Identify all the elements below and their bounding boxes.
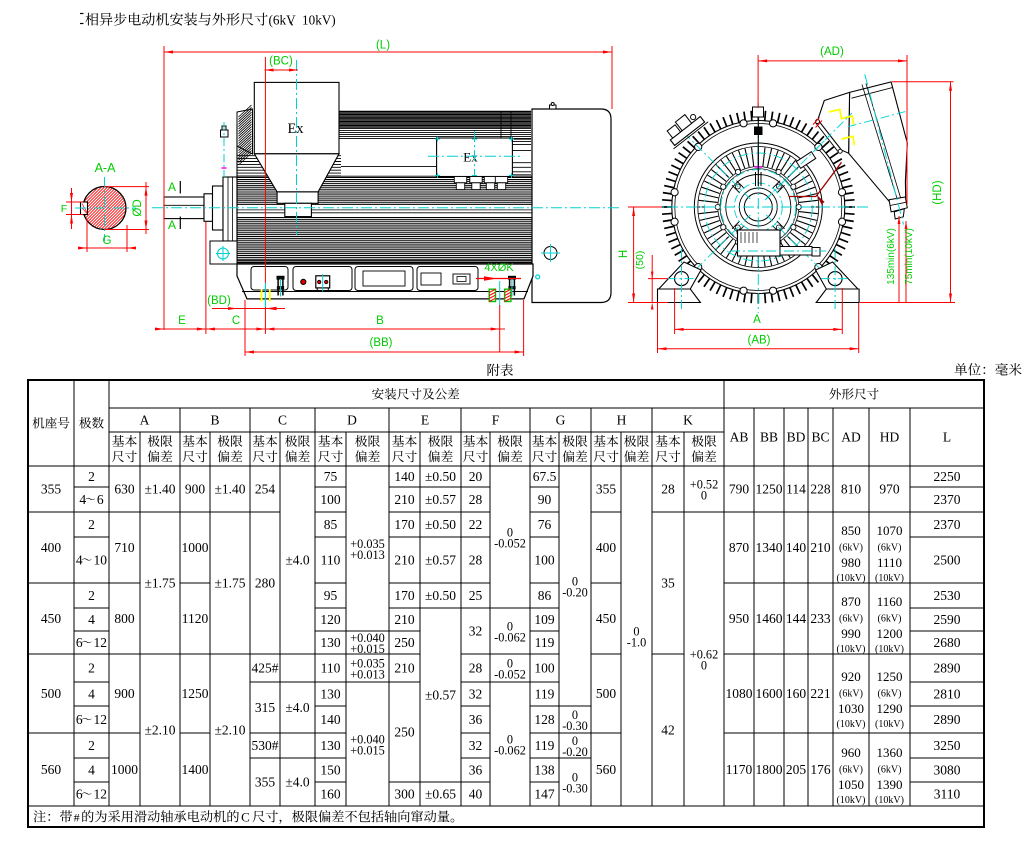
svg-text:1080: 1080 <box>726 686 753 701</box>
svg-text:28: 28 <box>469 492 483 507</box>
svg-text:4: 4 <box>88 763 95 778</box>
svg-text:1000: 1000 <box>182 540 209 555</box>
svg-text:870: 870 <box>841 594 861 609</box>
svg-text:1120: 1120 <box>182 611 209 626</box>
svg-text:C: C <box>278 413 287 428</box>
svg-text:(HD): (HD) <box>932 180 944 204</box>
svg-text:25: 25 <box>469 588 483 603</box>
svg-text:(6kV): (6kV) <box>839 543 863 554</box>
svg-text:-0.052: -0.052 <box>494 537 526 551</box>
svg-text:95: 95 <box>324 588 338 603</box>
svg-text:120: 120 <box>320 612 341 627</box>
svg-text:(10kV): (10kV) <box>875 719 904 730</box>
svg-text:±2.10: ±2.10 <box>144 723 175 738</box>
svg-text:500: 500 <box>596 686 617 701</box>
svg-text:140: 140 <box>786 540 807 555</box>
svg-text:3250: 3250 <box>934 738 961 753</box>
svg-text:450: 450 <box>596 611 617 626</box>
svg-text:530#: 530# <box>252 738 279 753</box>
svg-text:±2.10: ±2.10 <box>214 723 245 738</box>
svg-text:(10kV): (10kV) <box>875 644 904 655</box>
svg-text:355: 355 <box>255 775 276 790</box>
svg-text:±0.57: ±0.57 <box>425 492 456 507</box>
svg-text:1250: 1250 <box>182 686 209 701</box>
svg-text:±1.75: ±1.75 <box>214 576 245 591</box>
svg-text:128: 128 <box>534 712 555 727</box>
svg-text:(AD): (AD) <box>820 46 844 58</box>
svg-text:AB: AB <box>730 430 749 445</box>
svg-text:B: B <box>210 413 219 428</box>
svg-text:2530: 2530 <box>934 588 961 603</box>
svg-text:-0.062: -0.062 <box>494 744 526 758</box>
svg-text:210: 210 <box>394 612 415 627</box>
svg-text:(6kV): (6kV) <box>839 765 863 776</box>
svg-text:+0.013: +0.013 <box>350 548 385 562</box>
svg-text:2500: 2500 <box>934 553 961 568</box>
svg-text:150: 150 <box>320 763 341 778</box>
svg-text:(10kV): (10kV) <box>875 573 904 584</box>
svg-text:920: 920 <box>841 669 861 684</box>
svg-text:BC: BC <box>811 430 829 445</box>
svg-text:710: 710 <box>114 540 135 555</box>
svg-text:1050: 1050 <box>838 777 864 792</box>
svg-text:12: 12 <box>94 787 108 802</box>
svg-text:A: A <box>168 218 176 232</box>
svg-text:(6kV): (6kV) <box>839 614 863 625</box>
svg-text:1290: 1290 <box>877 701 903 716</box>
svg-text:2590: 2590 <box>934 612 961 627</box>
svg-text:36: 36 <box>469 712 483 727</box>
svg-text:(10kV): (10kV) <box>875 795 904 806</box>
svg-text:960: 960 <box>841 745 861 760</box>
svg-text:250: 250 <box>394 635 415 650</box>
svg-text:800: 800 <box>114 611 135 626</box>
svg-text:6: 6 <box>76 635 83 650</box>
svg-text:1360: 1360 <box>877 745 903 760</box>
svg-text:210: 210 <box>394 492 415 507</box>
svg-text:F: F <box>61 203 67 215</box>
svg-text:(6kV): (6kV) <box>839 689 863 700</box>
svg-text:2680: 2680 <box>934 635 961 650</box>
svg-text:#: # <box>74 810 80 824</box>
svg-text:+0.015: +0.015 <box>350 744 385 758</box>
svg-text:1340: 1340 <box>756 540 783 555</box>
svg-text:119: 119 <box>535 635 555 650</box>
svg-text:400: 400 <box>41 540 62 555</box>
svg-text:85: 85 <box>324 517 338 532</box>
svg-text:109: 109 <box>534 612 555 627</box>
svg-text:110: 110 <box>321 661 341 676</box>
svg-text:630: 630 <box>114 482 135 497</box>
svg-text:2370: 2370 <box>934 517 961 532</box>
svg-text:35: 35 <box>661 576 675 591</box>
svg-text:130: 130 <box>320 635 341 650</box>
svg-text:-1.0: -1.0 <box>627 636 646 650</box>
svg-text:2: 2 <box>88 661 95 676</box>
svg-text:560: 560 <box>596 762 617 777</box>
svg-text:160: 160 <box>320 787 341 802</box>
svg-text:(6kV): (6kV) <box>878 543 902 554</box>
svg-text:900: 900 <box>114 686 135 701</box>
svg-text:(10kV): (10kV) <box>837 644 866 655</box>
svg-text:Ex: Ex <box>463 150 478 165</box>
svg-text:2: 2 <box>88 588 95 603</box>
svg-text:E: E <box>421 413 429 428</box>
svg-text:32: 32 <box>469 624 483 639</box>
svg-text:1200: 1200 <box>877 626 903 641</box>
svg-text:28: 28 <box>469 553 483 568</box>
svg-text:110: 110 <box>321 553 341 568</box>
svg-text:2370: 2370 <box>934 492 961 507</box>
svg-text:355: 355 <box>41 482 62 497</box>
svg-text:4: 4 <box>79 492 86 507</box>
svg-text:6: 6 <box>76 712 83 727</box>
svg-text:12: 12 <box>94 635 108 650</box>
svg-text:(BB): (BB) <box>370 337 393 349</box>
svg-text:170: 170 <box>394 517 415 532</box>
svg-text:±4.0: ±4.0 <box>285 553 310 568</box>
svg-text:130: 130 <box>320 738 341 753</box>
svg-text:2810: 2810 <box>934 687 961 702</box>
svg-text:1390: 1390 <box>877 777 903 792</box>
svg-text:114: 114 <box>786 482 806 497</box>
svg-text:±0.57: ±0.57 <box>425 553 456 568</box>
svg-text:450: 450 <box>41 611 62 626</box>
svg-text:B: B <box>376 315 384 327</box>
svg-text:980: 980 <box>841 555 861 570</box>
svg-text:A: A <box>753 314 761 326</box>
svg-text:-0.30: -0.30 <box>562 719 588 733</box>
svg-text:300: 300 <box>394 787 415 802</box>
svg-text:-0.20: -0.20 <box>562 745 588 759</box>
svg-text:254: 254 <box>255 482 276 497</box>
svg-text:1000: 1000 <box>111 762 138 777</box>
svg-text:1250: 1250 <box>756 482 783 497</box>
svg-text:144: 144 <box>786 611 807 626</box>
svg-text:±0.50: ±0.50 <box>425 469 456 484</box>
svg-text:86: 86 <box>538 588 552 603</box>
svg-text:500: 500 <box>41 686 62 701</box>
svg-text:+0.015: +0.015 <box>350 642 385 656</box>
svg-text:(6kV): (6kV) <box>878 689 902 700</box>
svg-text:20: 20 <box>469 469 483 484</box>
svg-text:400: 400 <box>596 540 617 555</box>
svg-text:75min(10kV): 75min(10kV) <box>904 228 915 285</box>
svg-text:176: 176 <box>810 762 831 777</box>
svg-text:28: 28 <box>661 482 675 497</box>
svg-text:205: 205 <box>786 762 807 777</box>
svg-text:(50): (50) <box>634 251 646 270</box>
svg-text:90: 90 <box>538 492 552 507</box>
svg-text:32: 32 <box>469 738 483 753</box>
svg-text:G: G <box>103 235 112 247</box>
svg-text:(AB): (AB) <box>748 335 771 347</box>
svg-text:100: 100 <box>320 492 341 507</box>
svg-text:970: 970 <box>879 482 900 497</box>
svg-text:6: 6 <box>76 787 83 802</box>
svg-text:-0.052: -0.052 <box>494 668 526 682</box>
svg-text:119: 119 <box>535 687 555 702</box>
svg-text:135min(6kV): 135min(6kV) <box>886 228 897 285</box>
svg-text:AD: AD <box>841 430 861 445</box>
svg-text:BB: BB <box>760 430 778 445</box>
svg-text:HD: HD <box>880 430 900 445</box>
svg-text:A-A: A-A <box>95 161 117 175</box>
svg-text:1030: 1030 <box>838 701 864 716</box>
svg-text:0: 0 <box>701 659 707 673</box>
svg-text:(6kV): (6kV) <box>878 614 902 625</box>
svg-text:170: 170 <box>394 588 415 603</box>
svg-text:±4.0: ±4.0 <box>285 700 310 715</box>
svg-text:67.5: 67.5 <box>533 469 557 484</box>
svg-text:±1.75: ±1.75 <box>144 576 175 591</box>
svg-text:280: 280 <box>255 576 276 591</box>
svg-text:±4.0: ±4.0 <box>285 775 310 790</box>
svg-text:ØD: ØD <box>132 199 144 216</box>
svg-text:900: 900 <box>185 482 206 497</box>
svg-text:2890: 2890 <box>934 661 961 676</box>
svg-text:12: 12 <box>94 712 108 727</box>
svg-text:±1.40: ±1.40 <box>214 482 245 497</box>
svg-text:G: G <box>556 413 566 428</box>
svg-text:560: 560 <box>41 762 62 777</box>
svg-text:4: 4 <box>88 612 95 627</box>
svg-text:1400: 1400 <box>182 762 209 777</box>
svg-text:850: 850 <box>841 523 861 538</box>
svg-text:A: A <box>140 413 150 428</box>
svg-text:790: 790 <box>729 482 750 497</box>
svg-text:-0.30: -0.30 <box>562 782 588 796</box>
svg-text:4: 4 <box>76 553 83 568</box>
svg-text:950: 950 <box>729 611 750 626</box>
svg-text:2: 2 <box>88 738 95 753</box>
svg-text:100: 100 <box>534 553 555 568</box>
svg-text:355: 355 <box>596 482 617 497</box>
svg-text:228: 228 <box>810 482 831 497</box>
svg-text:+0.013: +0.013 <box>350 668 385 682</box>
svg-text:1160: 1160 <box>877 594 903 609</box>
svg-text:-0.20: -0.20 <box>562 586 588 600</box>
svg-text:1070: 1070 <box>877 523 903 538</box>
svg-text:1110: 1110 <box>877 555 902 570</box>
svg-text:160: 160 <box>786 686 807 701</box>
svg-text:130: 130 <box>320 687 341 702</box>
svg-text:210: 210 <box>394 661 415 676</box>
svg-text:(BC): (BC) <box>269 56 293 68</box>
svg-text:221: 221 <box>810 686 830 701</box>
svg-text:±1.40: ±1.40 <box>144 482 175 497</box>
svg-text:2: 2 <box>88 469 95 484</box>
svg-text:75: 75 <box>324 469 338 484</box>
svg-text:210: 210 <box>394 553 415 568</box>
svg-text:(10kV): (10kV) <box>837 573 866 584</box>
svg-text:E: E <box>178 315 186 327</box>
svg-text:±0.50: ±0.50 <box>425 517 456 532</box>
svg-text:A: A <box>168 180 176 194</box>
svg-text:32: 32 <box>469 687 483 702</box>
svg-text:40: 40 <box>469 787 483 802</box>
svg-text:140: 140 <box>394 469 415 484</box>
svg-text:(10kV): (10kV) <box>837 719 866 730</box>
svg-text:233: 233 <box>810 611 831 626</box>
svg-text:L: L <box>943 430 951 445</box>
svg-text:F: F <box>492 413 500 428</box>
svg-text:6: 6 <box>97 492 104 507</box>
svg-text:119: 119 <box>535 738 555 753</box>
svg-text:147: 147 <box>534 787 555 802</box>
svg-text:3080: 3080 <box>934 763 961 778</box>
svg-text:1460: 1460 <box>756 611 783 626</box>
svg-text:4XØK: 4XØK <box>484 262 514 274</box>
svg-text:H: H <box>617 413 627 428</box>
svg-text:315: 315 <box>255 700 276 715</box>
svg-text:0: 0 <box>701 489 707 503</box>
svg-text:250: 250 <box>394 725 415 740</box>
svg-text:28: 28 <box>469 661 483 676</box>
svg-text:76: 76 <box>538 517 552 532</box>
svg-text:22: 22 <box>469 517 483 532</box>
svg-text:210: 210 <box>810 540 831 555</box>
svg-text:D: D <box>347 413 357 428</box>
svg-text:C: C <box>232 315 240 327</box>
svg-text:(L): (L) <box>376 40 390 52</box>
svg-text:1170: 1170 <box>726 762 753 777</box>
svg-text:42: 42 <box>661 723 675 738</box>
svg-text:990: 990 <box>841 626 861 641</box>
svg-text:H: H <box>618 250 630 258</box>
svg-text:K: K <box>683 413 693 428</box>
svg-text:140: 140 <box>320 712 341 727</box>
svg-text:36: 36 <box>469 763 483 778</box>
svg-text:10kV): 10kV) <box>302 13 336 28</box>
svg-text:-0.062: -0.062 <box>494 631 526 645</box>
svg-text:±0.57: ±0.57 <box>425 688 456 703</box>
svg-text:±0.50: ±0.50 <box>425 588 456 603</box>
svg-text:138: 138 <box>534 763 555 778</box>
svg-text:4: 4 <box>88 687 95 702</box>
svg-text:2890: 2890 <box>934 712 961 727</box>
svg-text:2250: 2250 <box>934 469 961 484</box>
svg-text:100: 100 <box>534 661 555 676</box>
svg-text:(BD): (BD) <box>207 295 231 307</box>
svg-text:810: 810 <box>841 482 862 497</box>
svg-text:10: 10 <box>94 553 108 568</box>
svg-text:Ex: Ex <box>287 121 304 137</box>
svg-text:3110: 3110 <box>934 787 961 802</box>
svg-text:1250: 1250 <box>877 669 903 684</box>
svg-text:±0.65: ±0.65 <box>425 787 456 802</box>
svg-text:425#: 425# <box>252 661 279 676</box>
svg-text:BD: BD <box>787 430 806 445</box>
svg-text:(10kV): (10kV) <box>837 795 866 806</box>
svg-text:1600: 1600 <box>756 686 783 701</box>
svg-text:1800: 1800 <box>756 762 783 777</box>
svg-text:C: C <box>241 809 250 824</box>
svg-text:870: 870 <box>729 540 750 555</box>
svg-text:2: 2 <box>88 517 95 532</box>
svg-text:(6kV): (6kV) <box>878 765 902 776</box>
